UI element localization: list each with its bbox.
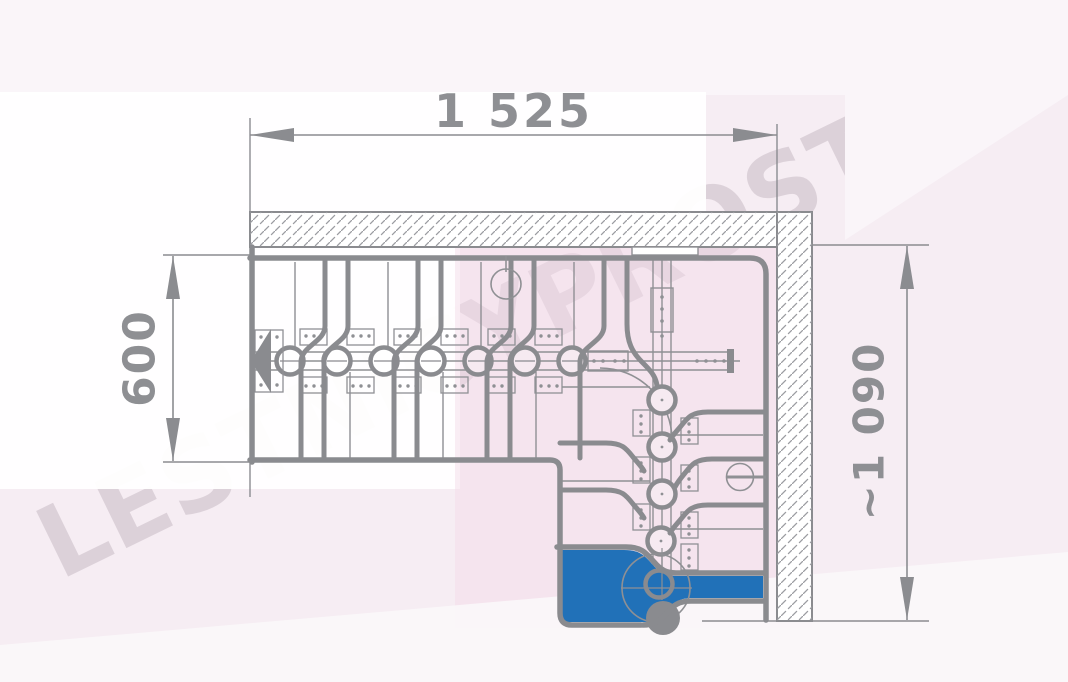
dimension-right-label: ~1 090 — [845, 342, 894, 521]
floor-plan-canvas: LESTNICYPROSTO.RU — [0, 0, 1068, 682]
dimension-left-label: 600 — [115, 309, 166, 407]
top-wall — [250, 212, 812, 247]
spine-end-cap — [727, 349, 734, 373]
arrow-up-icon — [900, 246, 914, 289]
dimension-top-label: 1 525 — [250, 84, 777, 138]
right-wall — [777, 212, 812, 621]
